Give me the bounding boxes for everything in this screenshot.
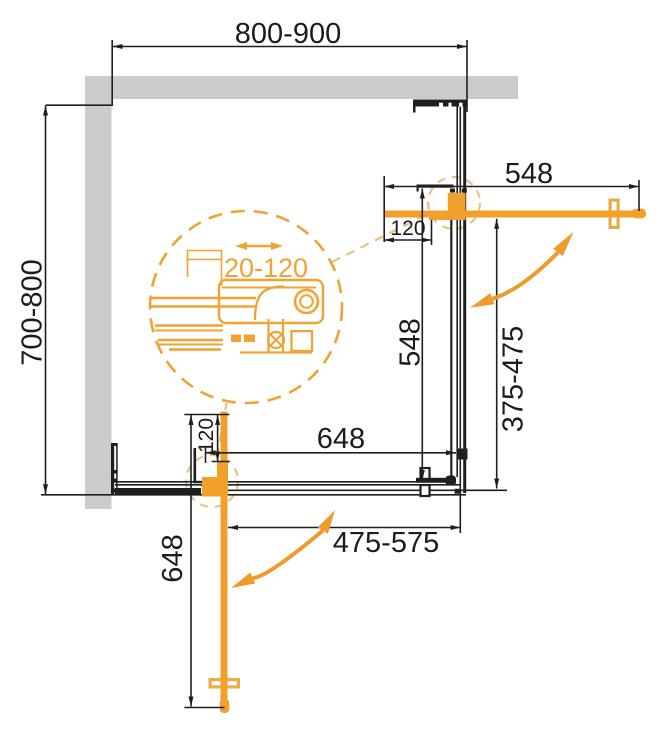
svg-text:800-900: 800-900: [235, 18, 341, 50]
svg-text:20-120: 20-120: [224, 253, 308, 283]
svg-text:548: 548: [395, 318, 427, 366]
svg-text:648: 648: [317, 423, 365, 455]
svg-text:548: 548: [505, 158, 553, 190]
svg-text:120: 120: [195, 418, 218, 453]
svg-text:700-800: 700-800: [17, 259, 49, 365]
svg-text:475-575: 475-575: [333, 527, 439, 559]
svg-text:375-475: 375-475: [498, 326, 530, 432]
svg-text:648: 648: [157, 534, 189, 582]
svg-text:120: 120: [390, 217, 425, 240]
